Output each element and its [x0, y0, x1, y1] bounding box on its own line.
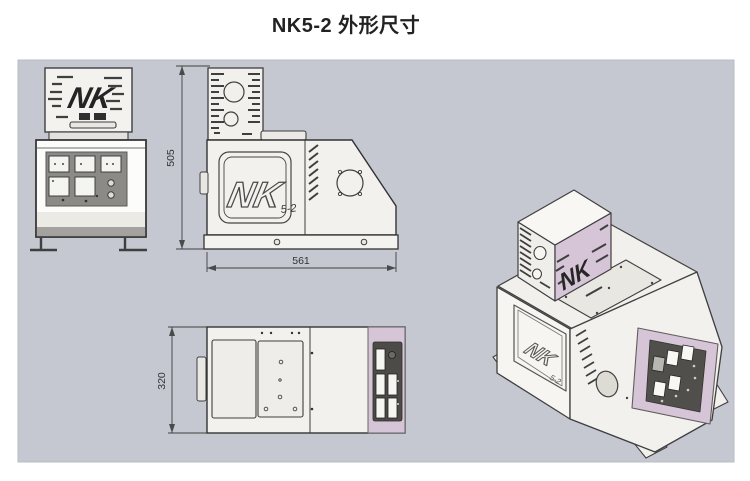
- front-view: NK: [30, 68, 147, 250]
- meter: [75, 156, 95, 172]
- front-head-mark: [94, 113, 106, 120]
- front-button: [108, 192, 114, 198]
- front-neck: [49, 132, 128, 140]
- iso-dot: [626, 397, 628, 399]
- iso-port-small: [533, 269, 542, 279]
- base-hole: [361, 239, 367, 245]
- meter: [101, 156, 121, 172]
- front-head-mark: [79, 113, 90, 120]
- front-button: [108, 180, 114, 186]
- top-panel-connector: [389, 352, 396, 359]
- side-model-label: 5-2: [280, 202, 297, 216]
- dim-depth-label: 320: [156, 372, 168, 390]
- front-base-band: [37, 212, 145, 227]
- side-bracket: [200, 172, 208, 194]
- panel-screw: [85, 200, 88, 203]
- drawing-sheet: NK5-2 外形尺寸 NK: [0, 0, 750, 481]
- panel-screw: [62, 199, 65, 202]
- meter: [49, 156, 69, 172]
- top-handle: [197, 357, 206, 401]
- panel-screw: [96, 195, 98, 197]
- side-port-small: [224, 112, 238, 126]
- meter: [49, 177, 69, 196]
- front-base-band-dark: [37, 227, 145, 237]
- top-panel-dot: [397, 403, 399, 405]
- side-top-tab: [261, 131, 306, 140]
- iso-port-large: [534, 247, 546, 260]
- svg-text:5-2: 5-2: [280, 202, 297, 216]
- side-base: [204, 235, 398, 249]
- meter: [75, 177, 95, 196]
- technical-drawing: NK: [0, 0, 750, 481]
- top-panel-dot: [397, 380, 399, 382]
- front-head-slot: [70, 122, 116, 128]
- dim-width-label: 561: [292, 255, 310, 267]
- dim-height-label: 505: [165, 149, 177, 167]
- top-plate-left: [212, 340, 256, 418]
- base-hole: [274, 239, 280, 245]
- side-port-large: [224, 82, 244, 102]
